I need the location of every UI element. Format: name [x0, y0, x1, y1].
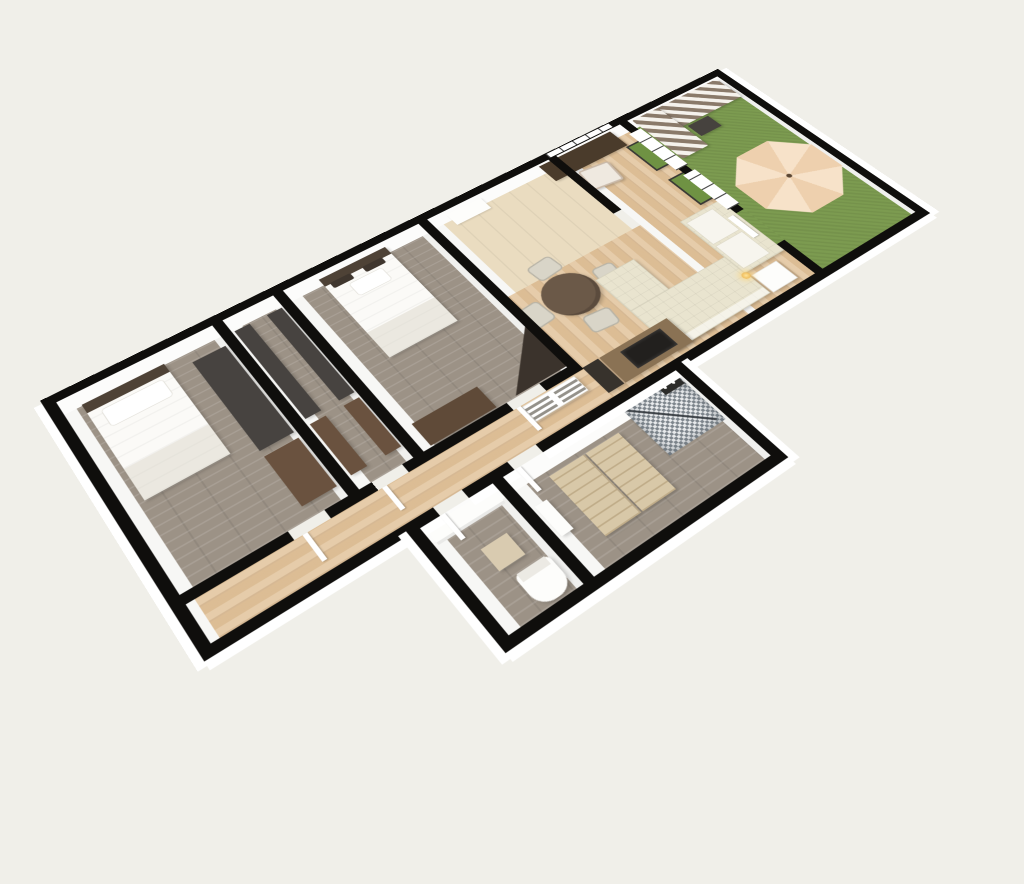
apartment-plan	[40, 69, 1024, 836]
parasol-pole	[785, 173, 793, 178]
floorplan-canvas	[0, 0, 1024, 884]
